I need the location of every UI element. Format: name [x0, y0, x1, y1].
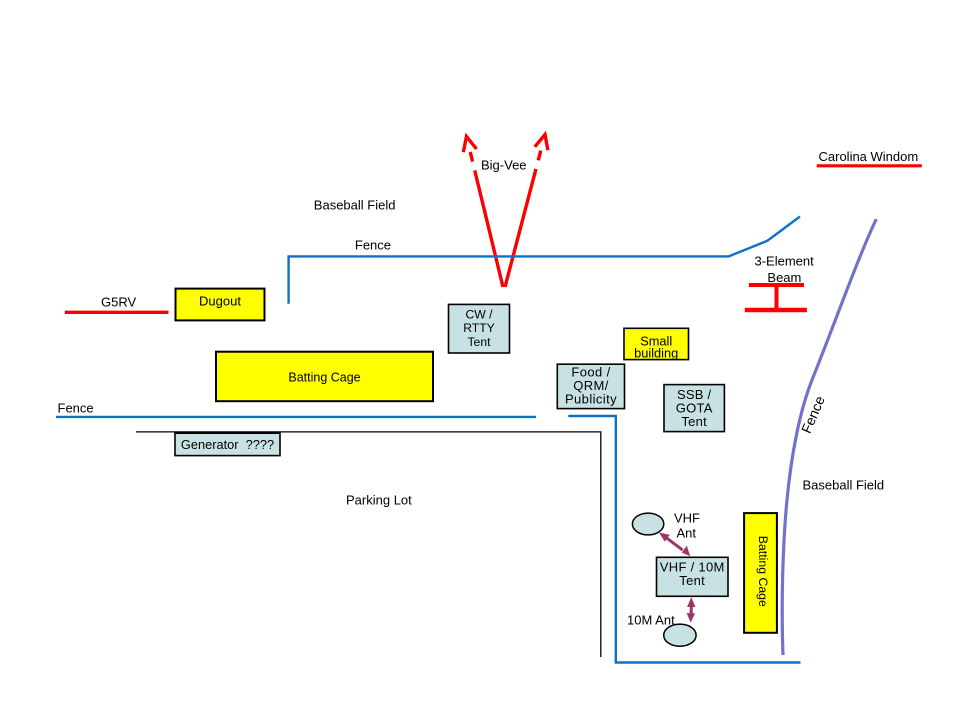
- svg-text:Tent: Tent: [467, 335, 491, 349]
- svg-text:Fence: Fence: [355, 237, 391, 252]
- svg-text:Tent: Tent: [679, 573, 705, 588]
- svg-text:Parking Lot: Parking Lot: [346, 493, 412, 508]
- svg-text:CW /: CW /: [465, 308, 493, 322]
- svg-text:Fence: Fence: [58, 401, 94, 416]
- svg-text:VHF: VHF: [674, 510, 700, 525]
- svg-text:Baseball Field: Baseball Field: [803, 478, 885, 493]
- svg-text:Dugout: Dugout: [199, 293, 241, 308]
- svg-text:Tent: Tent: [681, 414, 707, 429]
- svg-text:RTTY: RTTY: [463, 321, 495, 335]
- svg-text:Carolina Windom: Carolina Windom: [819, 149, 919, 164]
- svg-text:Publicity: Publicity: [565, 391, 617, 406]
- svg-text:building: building: [634, 346, 678, 361]
- svg-text:Baseball Field: Baseball Field: [314, 197, 396, 212]
- svg-text:Beam: Beam: [767, 270, 801, 285]
- svg-text:Ant: Ant: [677, 526, 697, 541]
- svg-text:G5RV: G5RV: [101, 295, 136, 310]
- svg-text:Batting Cage: Batting Cage: [288, 371, 360, 385]
- svg-text:Batting Cage: Batting Cage: [756, 536, 770, 607]
- svg-text:Big-Vee: Big-Vee: [481, 158, 527, 173]
- svg-text:3-Element: 3-Element: [754, 254, 814, 269]
- svg-text:10M Ant: 10M Ant: [627, 613, 675, 628]
- svg-text:Generator ????: Generator ????: [181, 437, 274, 452]
